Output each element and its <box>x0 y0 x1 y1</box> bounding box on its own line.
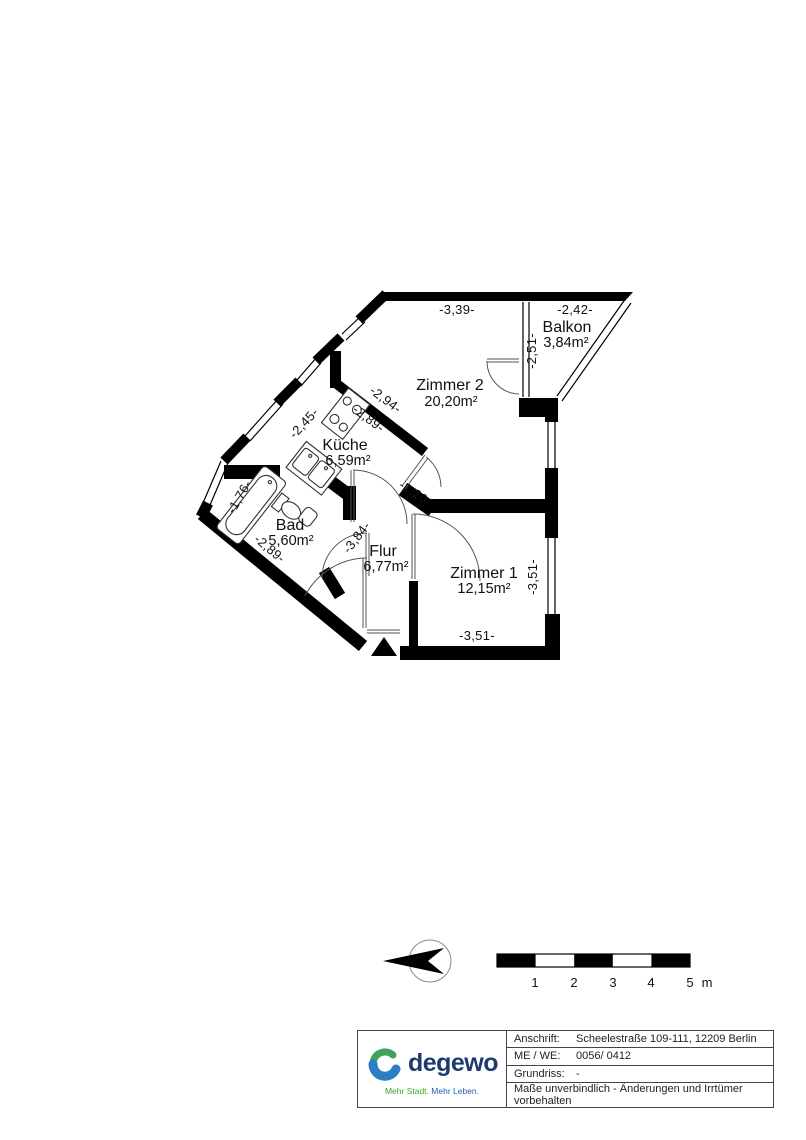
room-area-kueche: 6,59m² <box>325 453 370 469</box>
brand-tagline: Mehr Stadt. Mehr Leben. <box>385 1086 479 1096</box>
room-label-zimmer2: Zimmer 2 <box>416 377 484 394</box>
dim-zimmer1-height: -3,51- <box>525 559 540 595</box>
anschrift-value: Scheelestraße 109-111, 12209 Berlin <box>576 1033 773 1045</box>
scale-bar: 1 2 3 4 5 m <box>497 954 712 990</box>
entrance-triangle-icon <box>371 637 397 656</box>
title-block-info: Anschrift: Scheelestraße 109-111, 12209 … <box>507 1031 773 1107</box>
grundriss-value: - <box>576 1068 773 1080</box>
room-area-flur: 6,77m² <box>363 559 408 575</box>
tagline-part2: Mehr Leben. <box>431 1086 479 1096</box>
room-label-bad: Bad <box>276 517 304 534</box>
scale-label-5: 5 <box>686 975 693 990</box>
grundriss-label: Grundriss: <box>507 1068 576 1080</box>
room-label-zimmer1: Zimmer 1 <box>450 565 518 582</box>
room-label-balkon: Balkon <box>543 319 592 336</box>
dim-zimmer1-width: -3,51- <box>459 628 495 643</box>
dim-top-width: -3,39- <box>439 302 475 317</box>
room-area-balkon: 3,84m² <box>543 335 588 351</box>
room-area-zimmer2: 20,20m² <box>424 394 477 410</box>
scale-label-4: 4 <box>647 975 654 990</box>
tagline-part1: Mehr Stadt. <box>385 1086 429 1096</box>
dim-kueche-window: -2,45- <box>286 405 321 441</box>
dim-balkon-width: -2,42- <box>557 302 593 317</box>
info-row-anschrift: Anschrift: Scheelestraße 109-111, 12209 … <box>507 1031 773 1048</box>
room-label-kueche: Küche <box>322 437 367 454</box>
me-we-value: 0056/ 0412 <box>576 1050 773 1062</box>
floorplan-drawing: Zimmer 2 20,20m² Balkon 3,84m² Küche 6,5… <box>0 0 806 1140</box>
scale-label-1: 1 <box>531 975 538 990</box>
brand-name: degewo <box>408 1049 498 1078</box>
anschrift-label: Anschrift: <box>507 1033 576 1045</box>
info-row-me-we: ME / WE: 0056/ 0412 <box>507 1048 773 1065</box>
degewo-swirl-icon <box>366 1043 404 1085</box>
dim-balkon-depth: -2,51- <box>524 333 539 369</box>
room-label-flur: Flur <box>369 543 397 560</box>
scale-label-2: 2 <box>570 975 577 990</box>
me-we-label: ME / WE: <box>507 1050 576 1062</box>
scale-unit: m <box>702 975 713 990</box>
disclaimer: Maße unverbindlich - Änderungen und Irrt… <box>507 1083 773 1107</box>
floorplan-page: Zimmer 2 20,20m² Balkon 3,84m² Küche 6,5… <box>0 0 806 1140</box>
title-block: degewo Mehr Stadt. Mehr Leben. Anschrift… <box>357 1030 774 1108</box>
degewo-logo: degewo Mehr Stadt. Mehr Leben. <box>358 1031 507 1107</box>
room-area-zimmer1: 12,15m² <box>457 581 510 597</box>
info-row-grundriss: Grundriss: - <box>507 1066 773 1083</box>
scale-label-3: 3 <box>609 975 616 990</box>
north-arrow-icon <box>383 940 451 982</box>
